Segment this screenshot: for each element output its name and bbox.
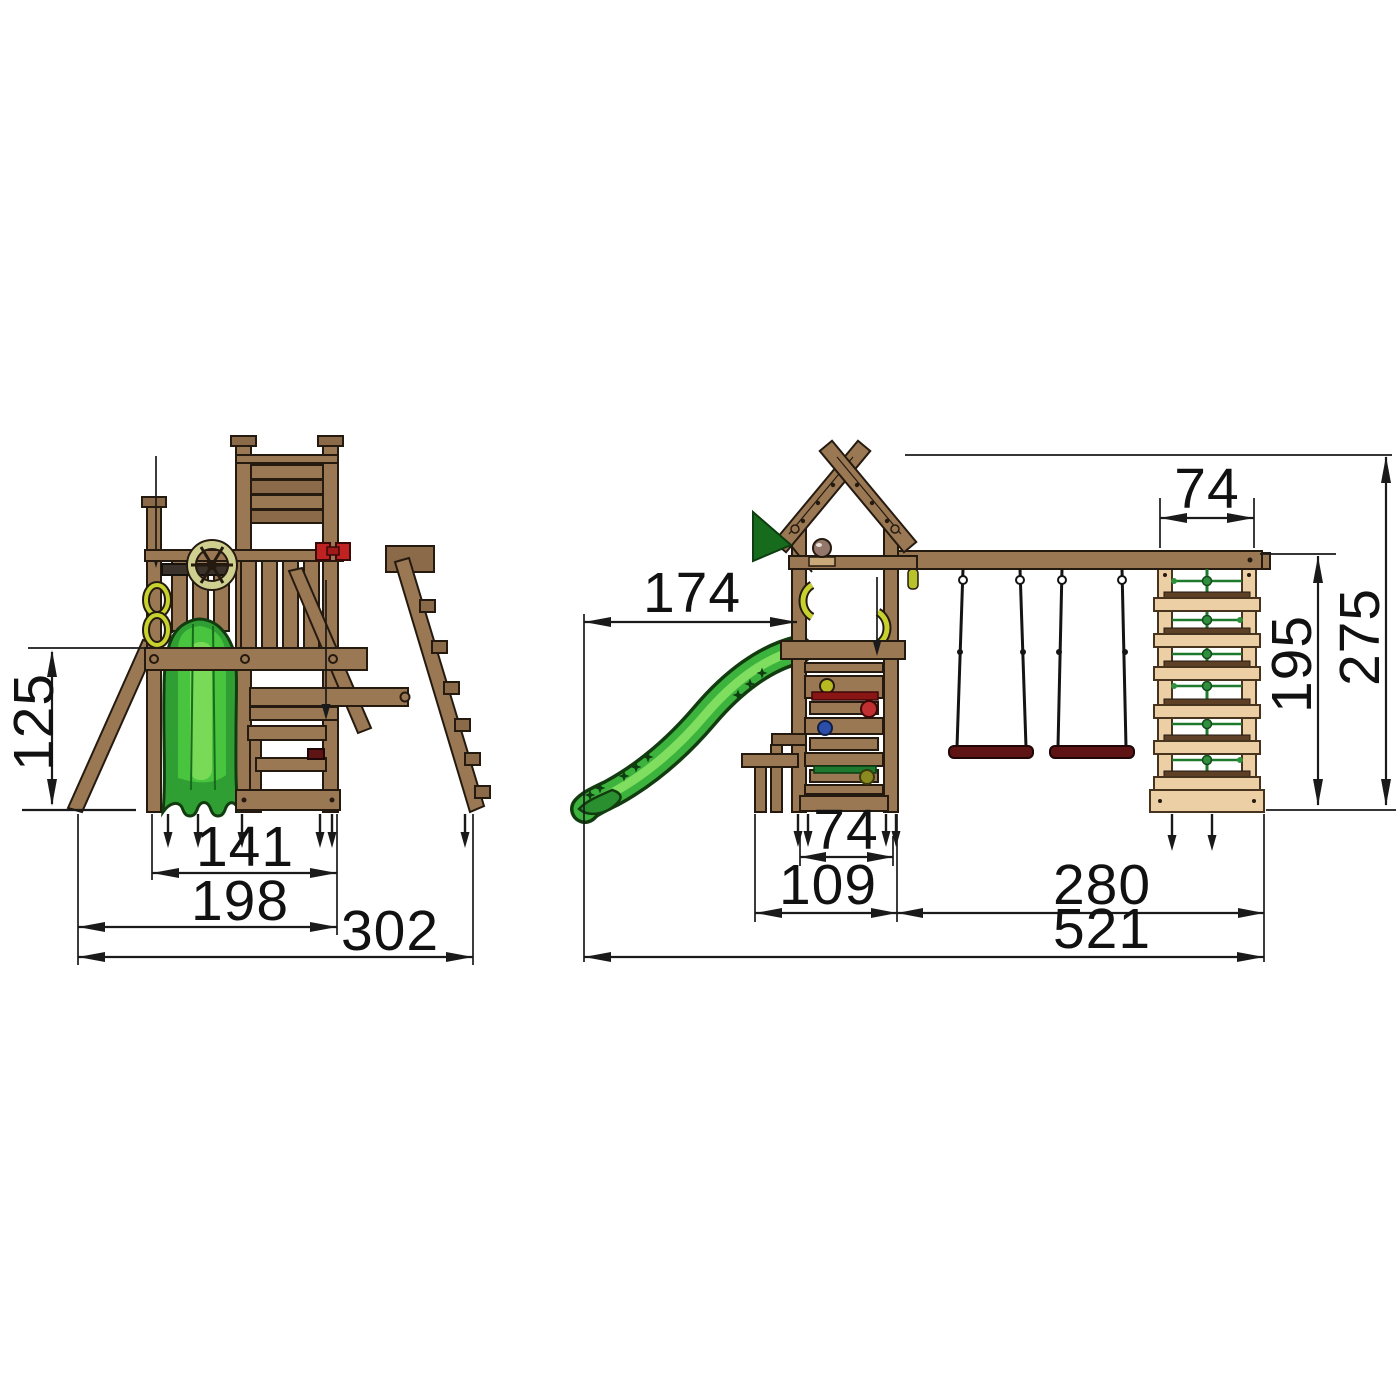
swing-2 [1050, 569, 1134, 758]
dimension-climb-frame-height: 195 [1260, 554, 1336, 806]
swing-seat-edge [308, 749, 324, 759]
balcony [236, 455, 338, 523]
dimension-platform-height: 125 [2, 648, 148, 806]
swing-seat-1 [949, 746, 1033, 758]
dim-label-275: 275 [1328, 588, 1392, 686]
platform-rail [145, 550, 343, 561]
hold-bar-red [812, 692, 878, 700]
tower-deck [781, 641, 905, 659]
dim-label-174: 174 [643, 561, 741, 625]
dimension-total-width: 521 [584, 897, 1264, 962]
swings [949, 569, 1134, 758]
swing-seat-2 [1050, 746, 1134, 758]
dimension-climb-frame-width: 74 [1160, 457, 1254, 548]
hold-blue [818, 721, 832, 735]
hold-yellow [820, 679, 834, 693]
dim-label-109: 109 [779, 853, 877, 917]
side-view: 125 141 198 302 [2, 436, 490, 965]
front-view: 174 275 195 74 74 [579, 452, 1396, 962]
hold-olive [860, 770, 874, 784]
dim-label-302: 302 [341, 899, 439, 963]
swing-hook-bracket [908, 569, 918, 589]
dim-label-74-top: 74 [1174, 457, 1239, 521]
ladder [386, 546, 490, 812]
tower-rail [789, 556, 917, 569]
bench-front [742, 745, 798, 812]
grab-handles [803, 585, 887, 644]
playground-dimension-drawing: 125 141 198 302 [0, 0, 1400, 1400]
swing-1 [949, 569, 1033, 758]
dim-label-195: 195 [1260, 615, 1324, 713]
knob [809, 539, 835, 566]
deck-beam [145, 648, 367, 670]
climbing-frame-base [1150, 790, 1264, 812]
dim-label-521: 521 [1053, 897, 1151, 961]
dim-label-198: 198 [191, 869, 289, 933]
roof [785, 452, 905, 541]
tower-front [742, 452, 917, 812]
swing-leg [68, 640, 157, 812]
base-board-side [236, 790, 340, 810]
steering-wheel [187, 540, 237, 590]
hold-red [861, 701, 877, 717]
drawing-svg: 125 141 198 302 [0, 0, 1400, 1400]
dim-label-125: 125 [2, 673, 66, 771]
